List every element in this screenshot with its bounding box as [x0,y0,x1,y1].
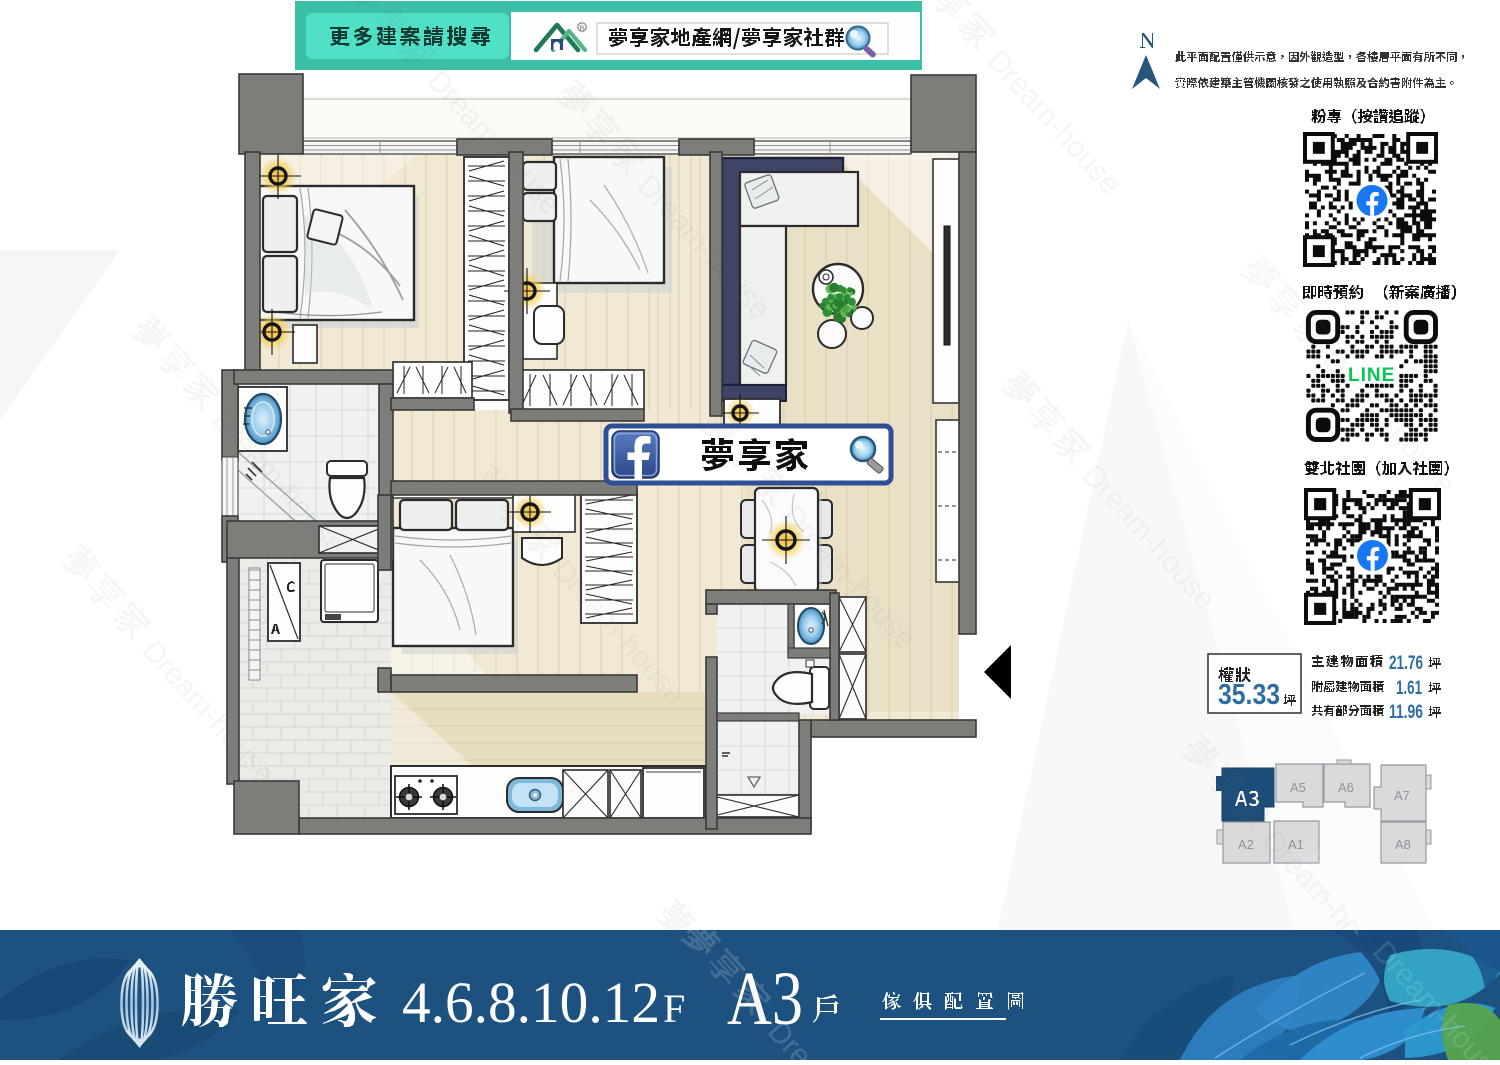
svg-text:A6: A6 [1338,780,1354,795]
svg-text:35.33: 35.33 [1218,679,1280,711]
svg-text:A2: A2 [1238,837,1254,852]
svg-text:A8: A8 [1395,837,1411,852]
svg-text:21.76: 21.76 [1389,653,1423,674]
svg-text:11.96: 11.96 [1389,702,1423,723]
svg-text:A7: A7 [1394,788,1410,803]
svg-text:R: R [580,26,585,32]
svg-text:F: F [663,986,685,1031]
svg-text:A5: A5 [1290,780,1306,795]
svg-text:1.61: 1.61 [1396,678,1422,699]
svg-text:4.6.8.10.12: 4.6.8.10.12 [402,970,660,1035]
